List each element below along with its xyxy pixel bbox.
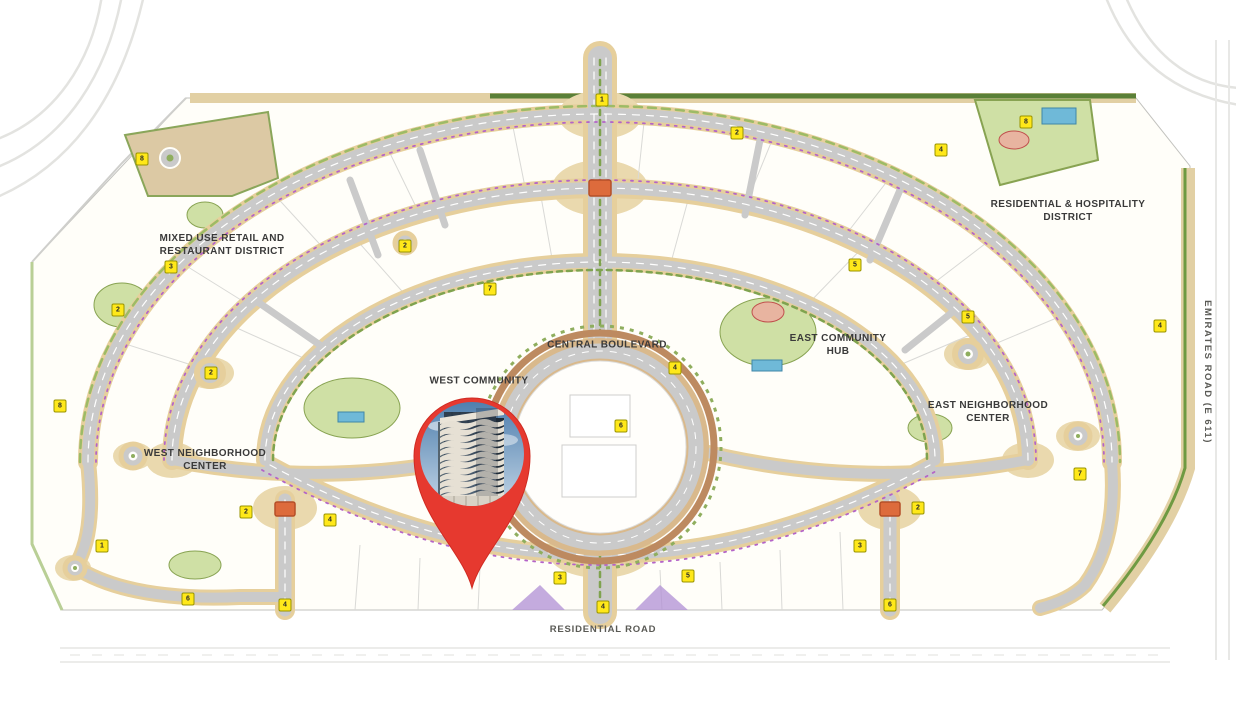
park-bottom-left [169,551,221,579]
label-east-community-hub: EAST COMMUNITY HUB [790,332,887,358]
pool-west-community [338,412,364,422]
plan-key-marker: 6 [615,420,628,433]
plan-key-marker: 6 [182,593,195,606]
label-residential-road: RESIDENTIAL ROAD [550,624,657,636]
pool-top-right [1042,108,1076,124]
location-pin-graphic [404,388,540,594]
plan-key-marker: 4 [935,144,948,157]
label-emirates-road: EMIRATES ROAD (E 611) [1201,300,1213,444]
plan-key-marker: 8 [136,153,149,166]
park-west-community [304,378,400,438]
plan-key-marker: 2 [240,506,253,519]
masterplan-drawing [0,0,1236,716]
plan-key-marker: 7 [1074,468,1087,481]
plan-key-marker: 2 [112,304,125,317]
label-mixed-use-district: MIXED USE RETAIL AND RESTAURANT DISTRICT [159,232,284,258]
plan-key-marker: 8 [54,400,67,413]
label-central-boulevard: CENTRAL BOULEVARD [547,339,667,352]
label-west-community: WEST COMMUNITY [430,375,529,388]
plan-key-marker: 3 [554,572,567,585]
plan-key-marker: 2 [731,127,744,140]
masterplan-map: MIXED USE RETAIL AND RESTAURANT DISTRICT… [0,0,1236,716]
plan-key-marker: 1 [596,94,609,107]
plan-key-marker: 5 [962,311,975,324]
plan-key-marker: 8 [1020,116,1033,129]
pool-east-hub [752,360,782,371]
plan-key-marker: 4 [597,601,610,614]
plan-key-marker: 3 [854,540,867,553]
plan-key-marker: 1 [96,540,109,553]
plan-key-marker: 7 [484,283,497,296]
label-west-neighborhood-center: WEST NEIGHBORHOOD CENTER [144,447,266,473]
plan-key-marker: 4 [279,599,292,612]
plan-key-marker: 6 [884,599,897,612]
location-pin[interactable] [404,388,540,594]
label-residential-hospitality-district: RESIDENTIAL & HOSPITALITY DISTRICT [991,198,1146,224]
plan-key-marker: 2 [912,502,925,515]
plan-key-marker: 3 [165,261,178,274]
plan-key-marker: 4 [669,362,682,375]
plan-key-marker: 2 [399,240,412,253]
label-east-neighborhood-center: EAST NEIGHBORHOOD CENTER [928,399,1048,425]
plan-key-marker: 4 [324,514,337,527]
plan-key-marker: 5 [849,259,862,272]
plan-key-marker: 2 [205,367,218,380]
plan-key-marker: 5 [682,570,695,583]
plan-key-marker: 4 [1154,320,1167,333]
